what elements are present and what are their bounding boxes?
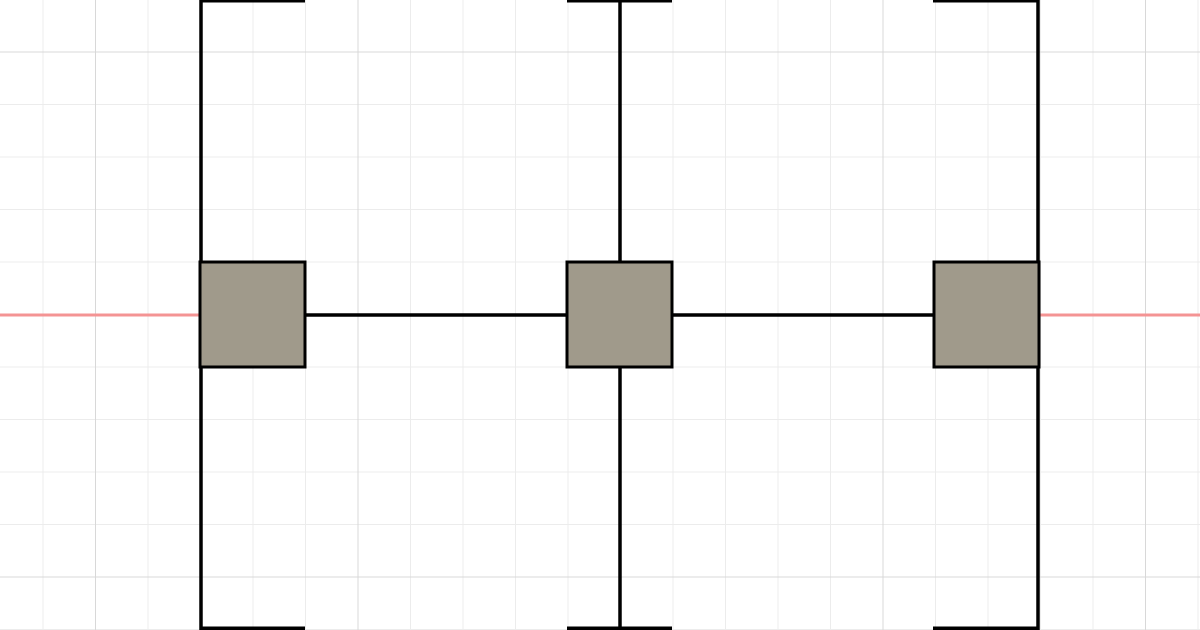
node-square[interactable] xyxy=(200,262,305,367)
node-square[interactable] xyxy=(567,262,672,367)
diagram-canvas[interactable] xyxy=(0,0,1200,630)
diagram-scene xyxy=(0,0,1200,630)
node-square[interactable] xyxy=(934,262,1039,367)
